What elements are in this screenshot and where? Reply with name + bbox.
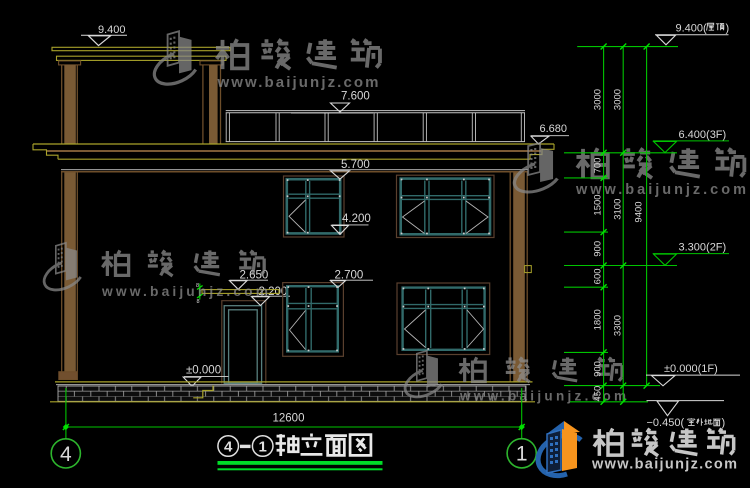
svg-text:www.baijunjz.com: www.baijunjz.com	[591, 457, 737, 473]
svg-text:2.700: 2.700	[335, 270, 364, 282]
svg-text:−0.450(: −0.450(	[647, 417, 685, 429]
svg-text:4.200: 4.200	[342, 213, 371, 225]
svg-text:5.700: 5.700	[341, 159, 370, 171]
svg-text:4: 4	[60, 443, 72, 466]
svg-text:±0.000: ±0.000	[186, 365, 221, 377]
svg-text:600: 600	[593, 268, 604, 284]
svg-text:): )	[722, 417, 726, 429]
svg-text:6.400(3F): 6.400(3F)	[679, 129, 727, 141]
svg-text:7.600: 7.600	[341, 91, 370, 103]
svg-text:6.680: 6.680	[540, 123, 568, 135]
svg-text:12600: 12600	[273, 413, 305, 425]
svg-text:3100: 3100	[612, 199, 623, 220]
svg-text:3000: 3000	[593, 89, 604, 110]
svg-text:450: 450	[593, 386, 604, 402]
svg-text:700: 700	[593, 158, 604, 174]
svg-text:3300: 3300	[612, 315, 623, 336]
svg-text:1800: 1800	[593, 309, 604, 330]
svg-text:1500: 1500	[593, 194, 604, 215]
svg-text:1: 1	[516, 443, 528, 466]
svg-text:±0.000(1F): ±0.000(1F)	[664, 363, 718, 375]
svg-text:1: 1	[259, 439, 267, 456]
svg-text:900: 900	[593, 361, 604, 377]
svg-text:900: 900	[593, 241, 604, 257]
svg-text:9.400(: 9.400(	[676, 23, 708, 35]
svg-text:9.400: 9.400	[98, 24, 126, 36]
svg-text:8: 8	[197, 299, 200, 305]
svg-text:4: 4	[224, 439, 233, 456]
svg-text:9400: 9400	[634, 201, 645, 222]
svg-text:3000: 3000	[612, 89, 623, 110]
svg-text:3.300(2F): 3.300(2F)	[679, 242, 727, 254]
svg-text:): )	[726, 23, 730, 35]
